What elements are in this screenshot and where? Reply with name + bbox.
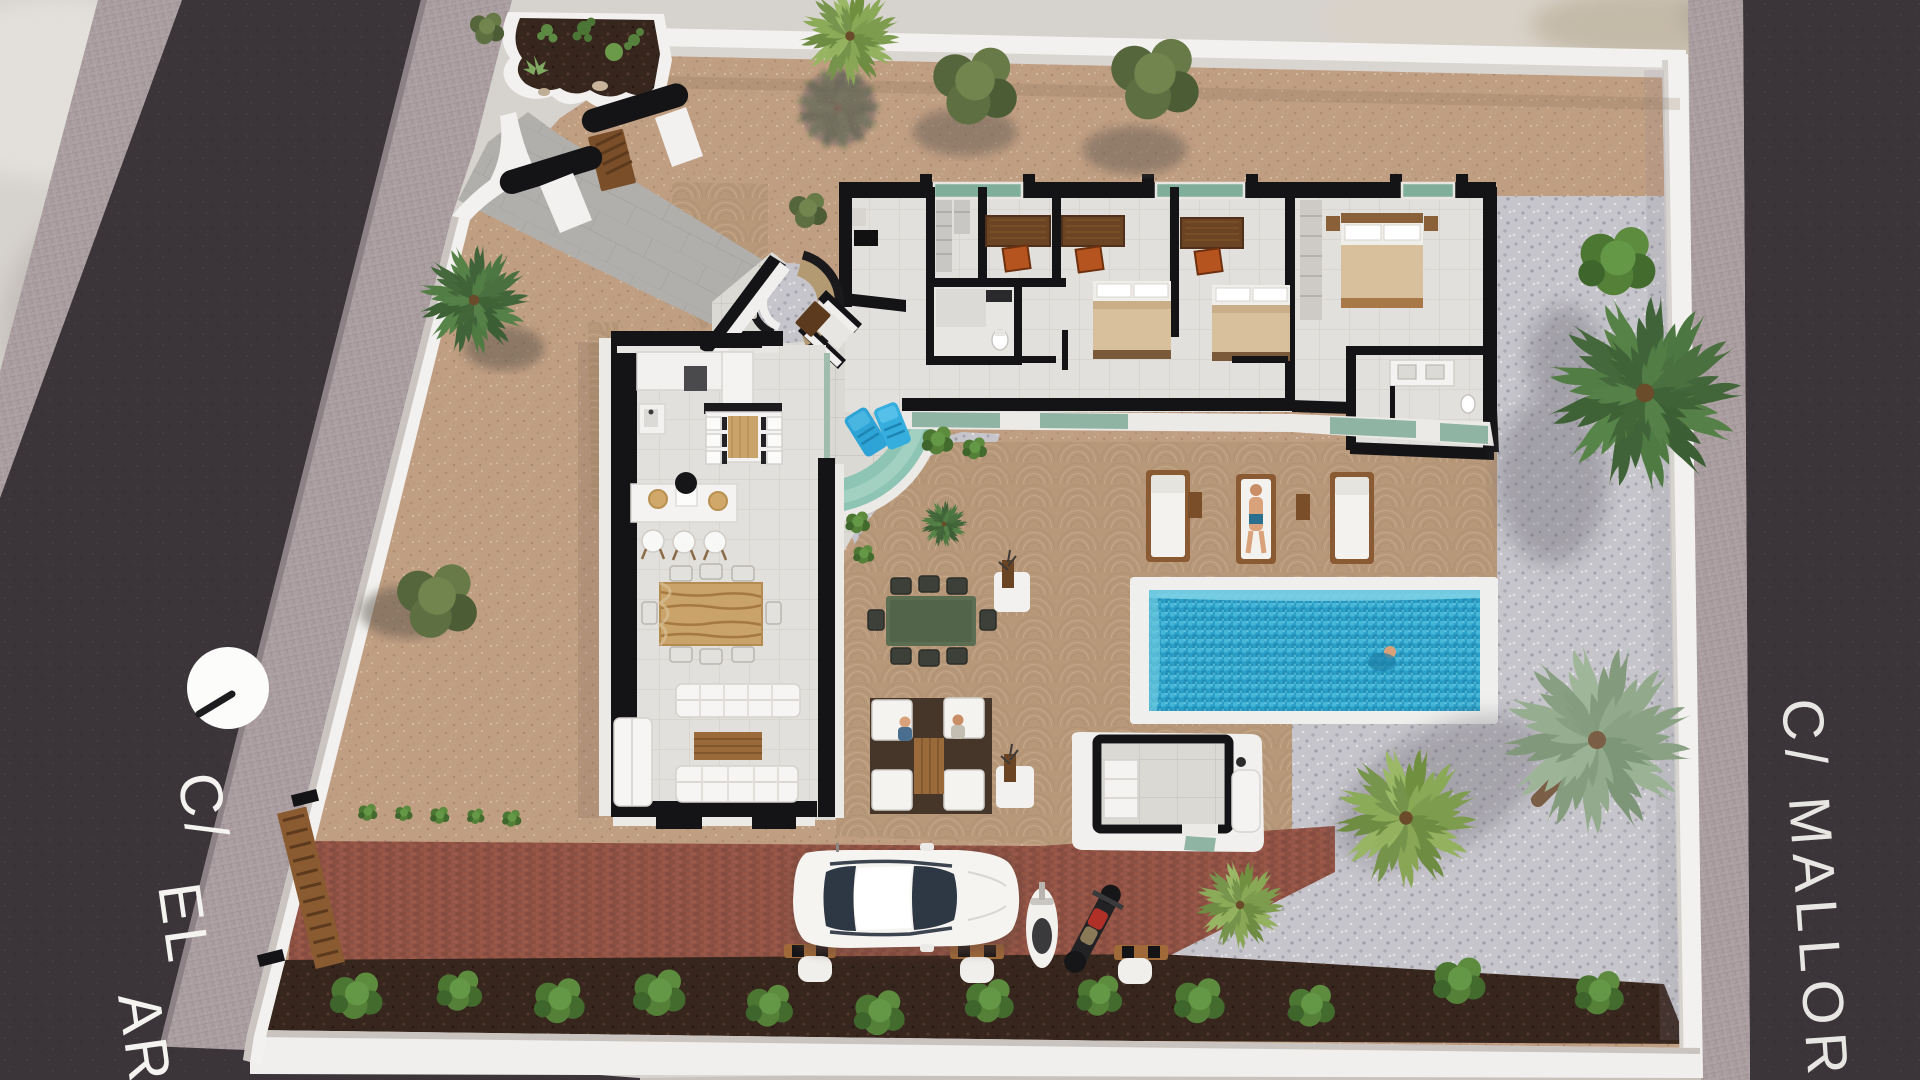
svg-text:C/: C/: [165, 768, 241, 847]
svg-text:EL: EL: [145, 878, 223, 970]
svg-text:AR: AR: [105, 988, 184, 1080]
